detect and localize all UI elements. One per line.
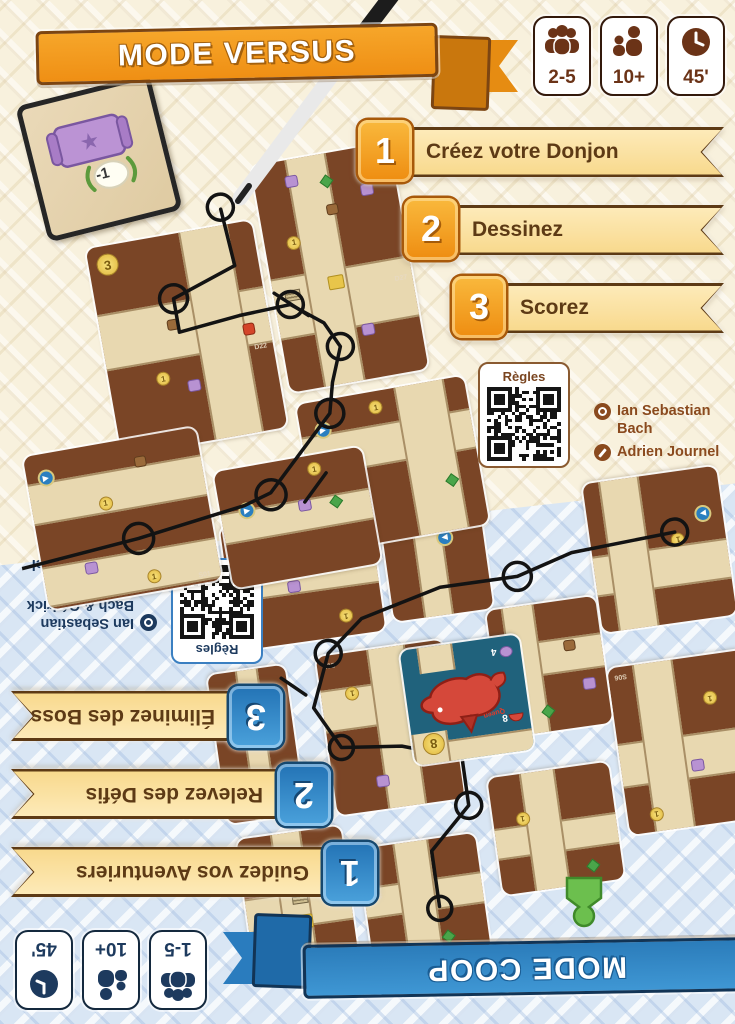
step-label: Éliminez des Boss (11, 691, 243, 741)
coop-step-2: Relevez des Défis 2 (11, 762, 331, 826)
designer-name: Ian Sebastian Bach (617, 402, 730, 438)
step-label: Créez votre Donjon (398, 127, 724, 177)
players-count: 2-5 (548, 67, 575, 89)
dungeon-card: ▶ 1 (213, 446, 381, 588)
versus-step-3: Scorez 3 (452, 276, 724, 340)
players-icon (158, 962, 198, 1003)
step-number: 3 (452, 276, 506, 338)
scroll-icon (287, 580, 302, 594)
dungeon-card: ▶ 1 1 S01 (23, 427, 222, 610)
versus-step-2: Dessinez 2 (404, 198, 724, 262)
scroll-icon (187, 378, 202, 392)
step-number: 1 (358, 120, 412, 182)
step-number: 3 (229, 686, 283, 748)
pen-icon (594, 444, 611, 461)
players-count: 1-5 (164, 938, 191, 960)
dungeon-card: 1 ▶ (582, 466, 735, 633)
duration-value: 45' (683, 67, 709, 89)
scroll-icon (359, 182, 374, 196)
scroll-icon (582, 677, 597, 691)
versus-title: MODE VERSUS (118, 35, 357, 74)
adventurer-meeple (561, 876, 607, 928)
qr-label: Règles (196, 642, 239, 657)
players-badge: 1-5 (149, 930, 207, 1010)
coop-title: MODE COOP (427, 949, 628, 986)
qr-label: Règles (503, 369, 546, 384)
play-icon: ▶ (693, 504, 712, 523)
trap-icon (242, 322, 256, 336)
players-icon (542, 24, 582, 65)
coop-mode-banner: MODE COOP (303, 937, 735, 999)
scroll-illustration: ★ (21, 79, 177, 236)
gem-icon (586, 859, 600, 873)
step-number: 1 (323, 842, 377, 904)
players-badge: 2-5 (533, 16, 591, 96)
dungeon-card: 3 1 D22 (86, 220, 288, 456)
qr-code (487, 387, 561, 461)
scroll-icon (361, 322, 376, 336)
clock-icon (26, 962, 62, 1003)
versus-rules-qr[interactable]: Règles (478, 362, 570, 468)
scroll-icon (84, 561, 99, 575)
game-insert-page: MODE VERSUS 2-5 10+ (0, 0, 735, 1024)
coop-badges: 1-5 10+ 45' (15, 930, 207, 1010)
age-badge: 10+ (600, 16, 658, 96)
barrel-icon (133, 455, 147, 468)
coin-icon: 1 (338, 608, 354, 624)
step-label: Dessinez (444, 205, 724, 255)
duration-badge: 45' (667, 16, 725, 96)
boss-card: Queen 8 8 4 (400, 634, 535, 766)
card-code: D22 (254, 342, 268, 351)
step-number: 2 (277, 764, 331, 826)
step-number: 2 (404, 198, 458, 260)
coop-step-1: Guidez vos Aventuriers 1 (11, 840, 377, 904)
illustrator-name: Adrien Journel (617, 443, 719, 461)
clock-icon (678, 24, 714, 65)
age-icon (91, 962, 131, 1003)
barrel-icon (326, 202, 340, 215)
gold-icon (327, 274, 345, 291)
barrel-icon (166, 318, 180, 331)
age-badge: 10+ (82, 930, 140, 1010)
coin-icon: 3 (95, 252, 120, 277)
scroll-icon (376, 774, 391, 788)
dragon-illustration (400, 634, 535, 766)
versus-step-1: Créez votre Donjon 1 (358, 120, 724, 184)
versus-mode-banner: MODE VERSUS (35, 23, 438, 85)
designer-credit: Ian Sebastian Bach (594, 402, 730, 438)
gear-icon (140, 614, 157, 631)
dungeon-card: 1 1 S06 (607, 650, 735, 836)
step-label: Scorez (492, 283, 724, 333)
coin-icon: 1 (306, 461, 322, 477)
coop-step-3: Éliminez des Boss 3 (11, 684, 283, 748)
age-value: 10+ (613, 67, 645, 89)
duration-badge: 45' (15, 930, 73, 1010)
duration-value: 45' (31, 938, 57, 960)
coin-icon: 1 (702, 690, 718, 706)
versus-banner-fold (431, 35, 492, 111)
illustrator-credit: Adrien Journel (594, 443, 730, 461)
gem-icon (441, 929, 455, 943)
gear-icon (594, 403, 611, 420)
coin-icon: 1 (368, 399, 384, 415)
scroll-icon (690, 759, 705, 773)
coin-icon: 1 (155, 371, 171, 387)
card-code: S07 (322, 661, 335, 670)
age-icon (609, 24, 649, 65)
age-value: 10+ (95, 938, 127, 960)
step-label: Relevez des Défis (11, 769, 291, 819)
step-label: Guidez vos Aventuriers (11, 847, 337, 897)
card-code: S06 (614, 672, 627, 681)
scroll-icon (284, 175, 299, 189)
versus-credits: Ian Sebastian Bach Adrien Journel (594, 402, 730, 461)
barrel-icon (562, 639, 575, 652)
versus-badges: 2-5 10+ 45' (533, 16, 725, 96)
